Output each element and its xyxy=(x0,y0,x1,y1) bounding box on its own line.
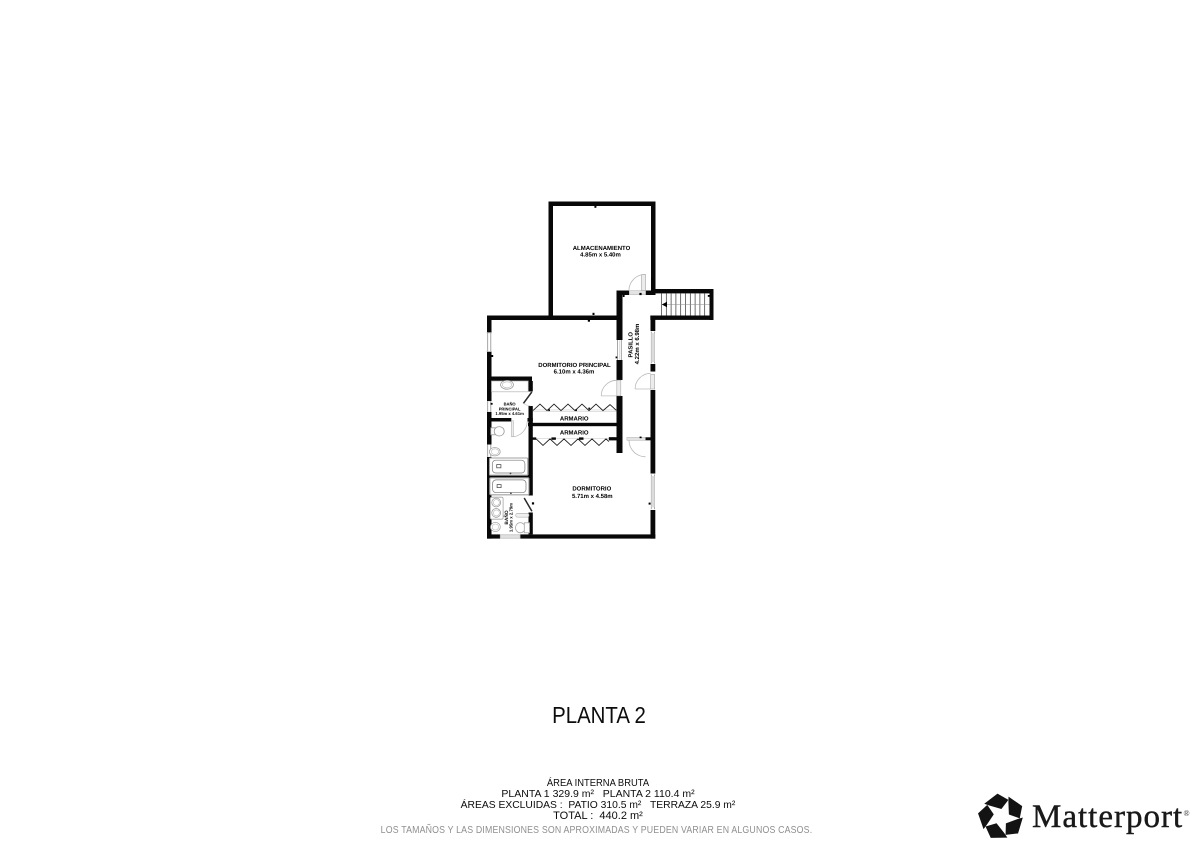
svg-text:5.71m x 4.58m: 5.71m x 4.58m xyxy=(572,493,613,500)
svg-text:6.10m x 4.36m: 6.10m x 4.36m xyxy=(554,368,595,375)
svg-text:ARMARIO: ARMARIO xyxy=(560,416,589,423)
svg-text:DORMITORIO PRINCIPAL: DORMITORIO PRINCIPAL xyxy=(538,362,611,369)
svg-text:4.22m x 6.98m: 4.22m x 6.98m xyxy=(634,324,641,365)
svg-text:ARMARIO: ARMARIO xyxy=(560,429,589,436)
svg-text:PASILLO: PASILLO xyxy=(627,332,634,358)
svg-text:DORMITORIO: DORMITORIO xyxy=(572,486,611,493)
svg-text:4.85m x 5.40m: 4.85m x 5.40m xyxy=(580,252,621,259)
svg-text:1.95m x 4.61m: 1.95m x 4.61m xyxy=(495,411,524,416)
svg-text:1.95m x 2.79m: 1.95m x 2.79m xyxy=(509,503,514,532)
svg-text:ALMACENAMIENTO: ALMACENAMIENTO xyxy=(573,245,631,252)
